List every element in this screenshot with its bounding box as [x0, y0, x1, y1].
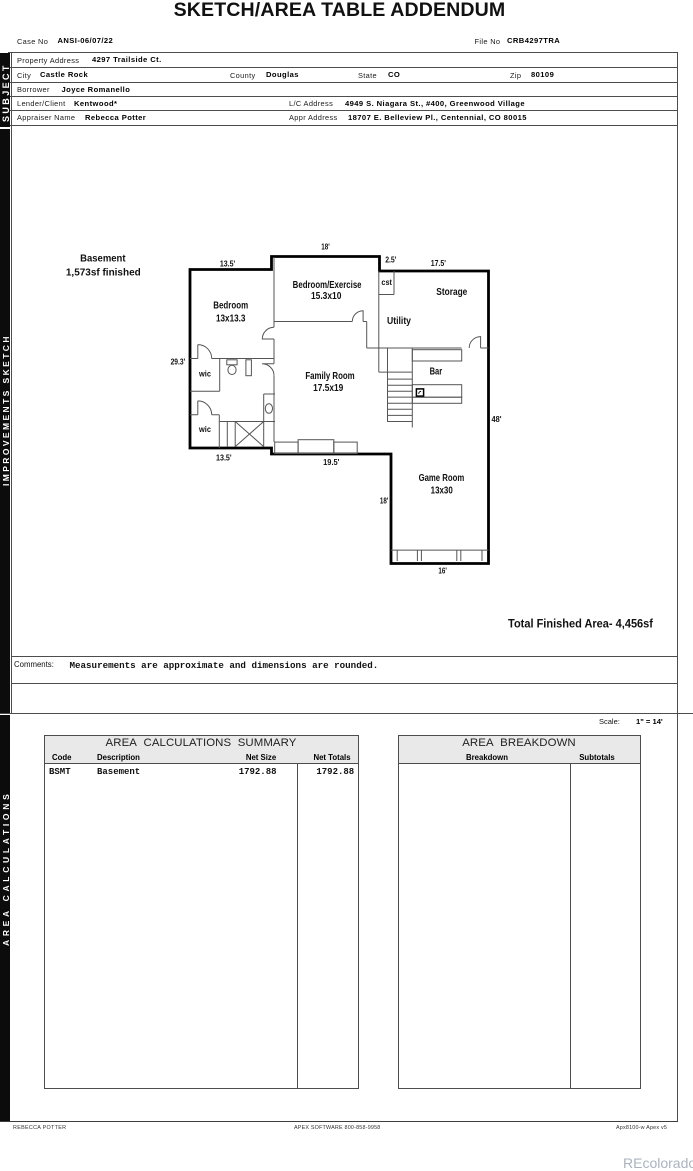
svg-text:wic: wic	[198, 369, 211, 379]
svg-text:Family Room: Family Room	[305, 370, 354, 381]
svg-text:29.3': 29.3'	[171, 357, 186, 367]
svg-text:Bedroom: Bedroom	[213, 300, 248, 311]
svg-text:48': 48'	[492, 415, 502, 424]
svg-text:19.5': 19.5'	[323, 458, 339, 467]
svg-text:17.5x19: 17.5x19	[313, 382, 343, 393]
svg-text:13.5': 13.5'	[220, 259, 235, 269]
svg-text:13.5': 13.5'	[216, 453, 232, 463]
svg-text:15.3x10: 15.3x10	[311, 291, 341, 302]
svg-text:Total Finished Area- 4,456sf: Total Finished Area- 4,456sf	[508, 618, 653, 630]
svg-text:Storage: Storage	[436, 286, 467, 297]
svg-text:Basement: Basement	[80, 254, 126, 265]
svg-text:16': 16'	[438, 566, 447, 576]
svg-text:wic: wic	[198, 425, 211, 435]
svg-text:13x13.3: 13x13.3	[216, 313, 245, 324]
svg-text:13x30: 13x30	[431, 485, 453, 496]
svg-text:Bar: Bar	[430, 366, 443, 377]
svg-text:Game Room: Game Room	[419, 472, 465, 483]
svg-text:2.5': 2.5'	[385, 255, 396, 265]
svg-text:18': 18'	[321, 242, 330, 252]
svg-text:cst: cst	[381, 277, 392, 287]
svg-text:Utility: Utility	[387, 316, 412, 327]
svg-text:17.5': 17.5'	[431, 259, 446, 269]
svg-text:1,573sf finished: 1,573sf finished	[66, 268, 141, 279]
svg-text:Bedroom/Exercise: Bedroom/Exercise	[293, 279, 362, 290]
svg-text:18': 18'	[380, 496, 389, 506]
